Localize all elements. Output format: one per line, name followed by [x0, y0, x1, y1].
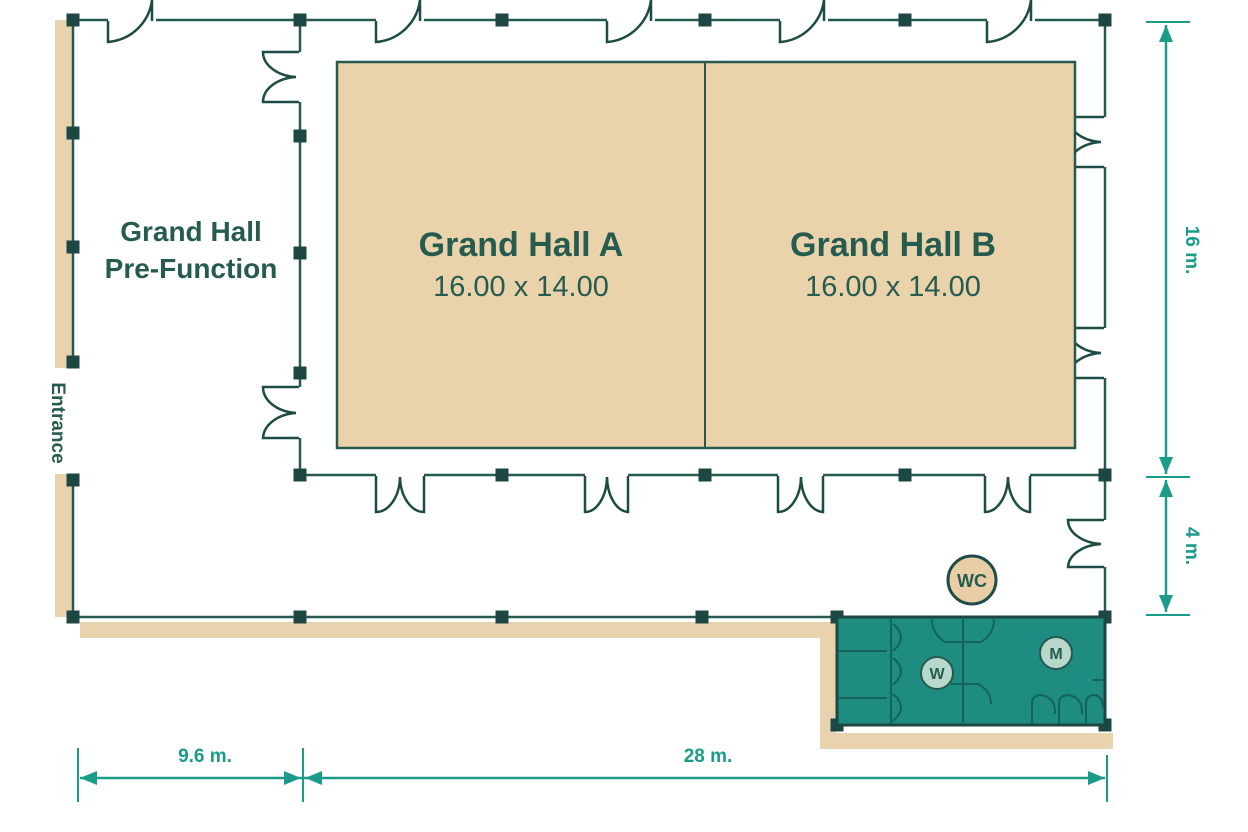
- dim-arrowhead: [1159, 25, 1173, 42]
- pre-function-area: Grand Hall Pre-Function Entrance: [47, 216, 277, 464]
- door-swing: [376, 0, 420, 42]
- column: [496, 611, 509, 624]
- walkway-wc-bottom: [820, 733, 1113, 749]
- double-door-swing: [778, 476, 823, 512]
- column: [67, 241, 80, 254]
- door-swing: [108, 0, 152, 42]
- women-badge-label: W: [929, 666, 945, 683]
- dimension-right: 16 m. 4 m.: [1146, 22, 1202, 615]
- column: [699, 14, 712, 27]
- column: [294, 367, 307, 380]
- entrance-label: Entrance: [47, 382, 68, 463]
- double-door-swing: [985, 476, 1030, 512]
- floor-plan-page: Grand Hall A 16.00 x 14.00 Grand Hall B …: [0, 0, 1248, 832]
- double-door-swing: [263, 52, 299, 102]
- door-swing: [607, 0, 651, 42]
- dim-arrowhead: [1159, 480, 1173, 497]
- column: [294, 247, 307, 260]
- column: [496, 469, 509, 482]
- double-door-swing: [263, 387, 299, 438]
- column: [67, 14, 80, 27]
- column: [496, 14, 509, 27]
- pre-function-label-line2: Pre-Function: [105, 253, 278, 284]
- dim-label-9-6m: 9.6 m.: [178, 746, 232, 767]
- dim-arrowhead: [80, 771, 97, 785]
- dim-label-28m: 28 m.: [684, 746, 733, 767]
- hall-a-name: Grand Hall A: [419, 226, 624, 264]
- dim-arrowhead: [284, 771, 301, 785]
- column: [67, 127, 80, 140]
- column: [899, 14, 912, 27]
- pre-function-label-line1: Grand Hall: [120, 216, 262, 247]
- column: [1099, 469, 1112, 482]
- column: [1099, 14, 1112, 27]
- double-door-swing: [376, 476, 424, 512]
- floor-plan-canvas: Grand Hall A 16.00 x 14.00 Grand Hall B …: [0, 0, 1248, 832]
- wc-badge-label: WC: [957, 571, 987, 591]
- column: [67, 611, 80, 624]
- wc-block: [837, 617, 1105, 725]
- dim-label-4m: 4 m.: [1181, 527, 1202, 565]
- hall-a-size: 16.00 x 14.00: [433, 271, 609, 303]
- column: [899, 469, 912, 482]
- dim-arrowhead: [1088, 771, 1105, 785]
- men-badge-label: M: [1049, 646, 1062, 663]
- dim-arrowhead: [305, 771, 322, 785]
- column: [294, 14, 307, 27]
- hall-b-size: 16.00 x 14.00: [805, 271, 981, 303]
- door-swing: [987, 0, 1031, 42]
- dim-arrowhead: [1159, 595, 1173, 612]
- grand-halls: Grand Hall A 16.00 x 14.00 Grand Hall B …: [337, 62, 1075, 448]
- walkway-entrance-upper: [55, 20, 73, 368]
- walkway-entrance-lower: [55, 474, 73, 617]
- column: [67, 474, 80, 487]
- column: [294, 469, 307, 482]
- wc-annex: WC W M: [837, 556, 1105, 725]
- door-swing: [780, 0, 824, 42]
- double-door-swing: [1068, 520, 1104, 567]
- hall-b-name: Grand Hall B: [790, 226, 996, 264]
- dim-extension-ticks-bottom: [78, 748, 1107, 802]
- dim-label-16m: 16 m.: [1181, 226, 1202, 275]
- dim-arrowhead: [1159, 457, 1173, 474]
- double-door-swing: [585, 476, 628, 512]
- column: [696, 611, 709, 624]
- column: [67, 356, 80, 369]
- walkway-bottom: [80, 622, 820, 638]
- column: [294, 130, 307, 143]
- column: [699, 469, 712, 482]
- column: [294, 611, 307, 624]
- dimension-bottom: 9.6 m. 28 m.: [78, 746, 1107, 802]
